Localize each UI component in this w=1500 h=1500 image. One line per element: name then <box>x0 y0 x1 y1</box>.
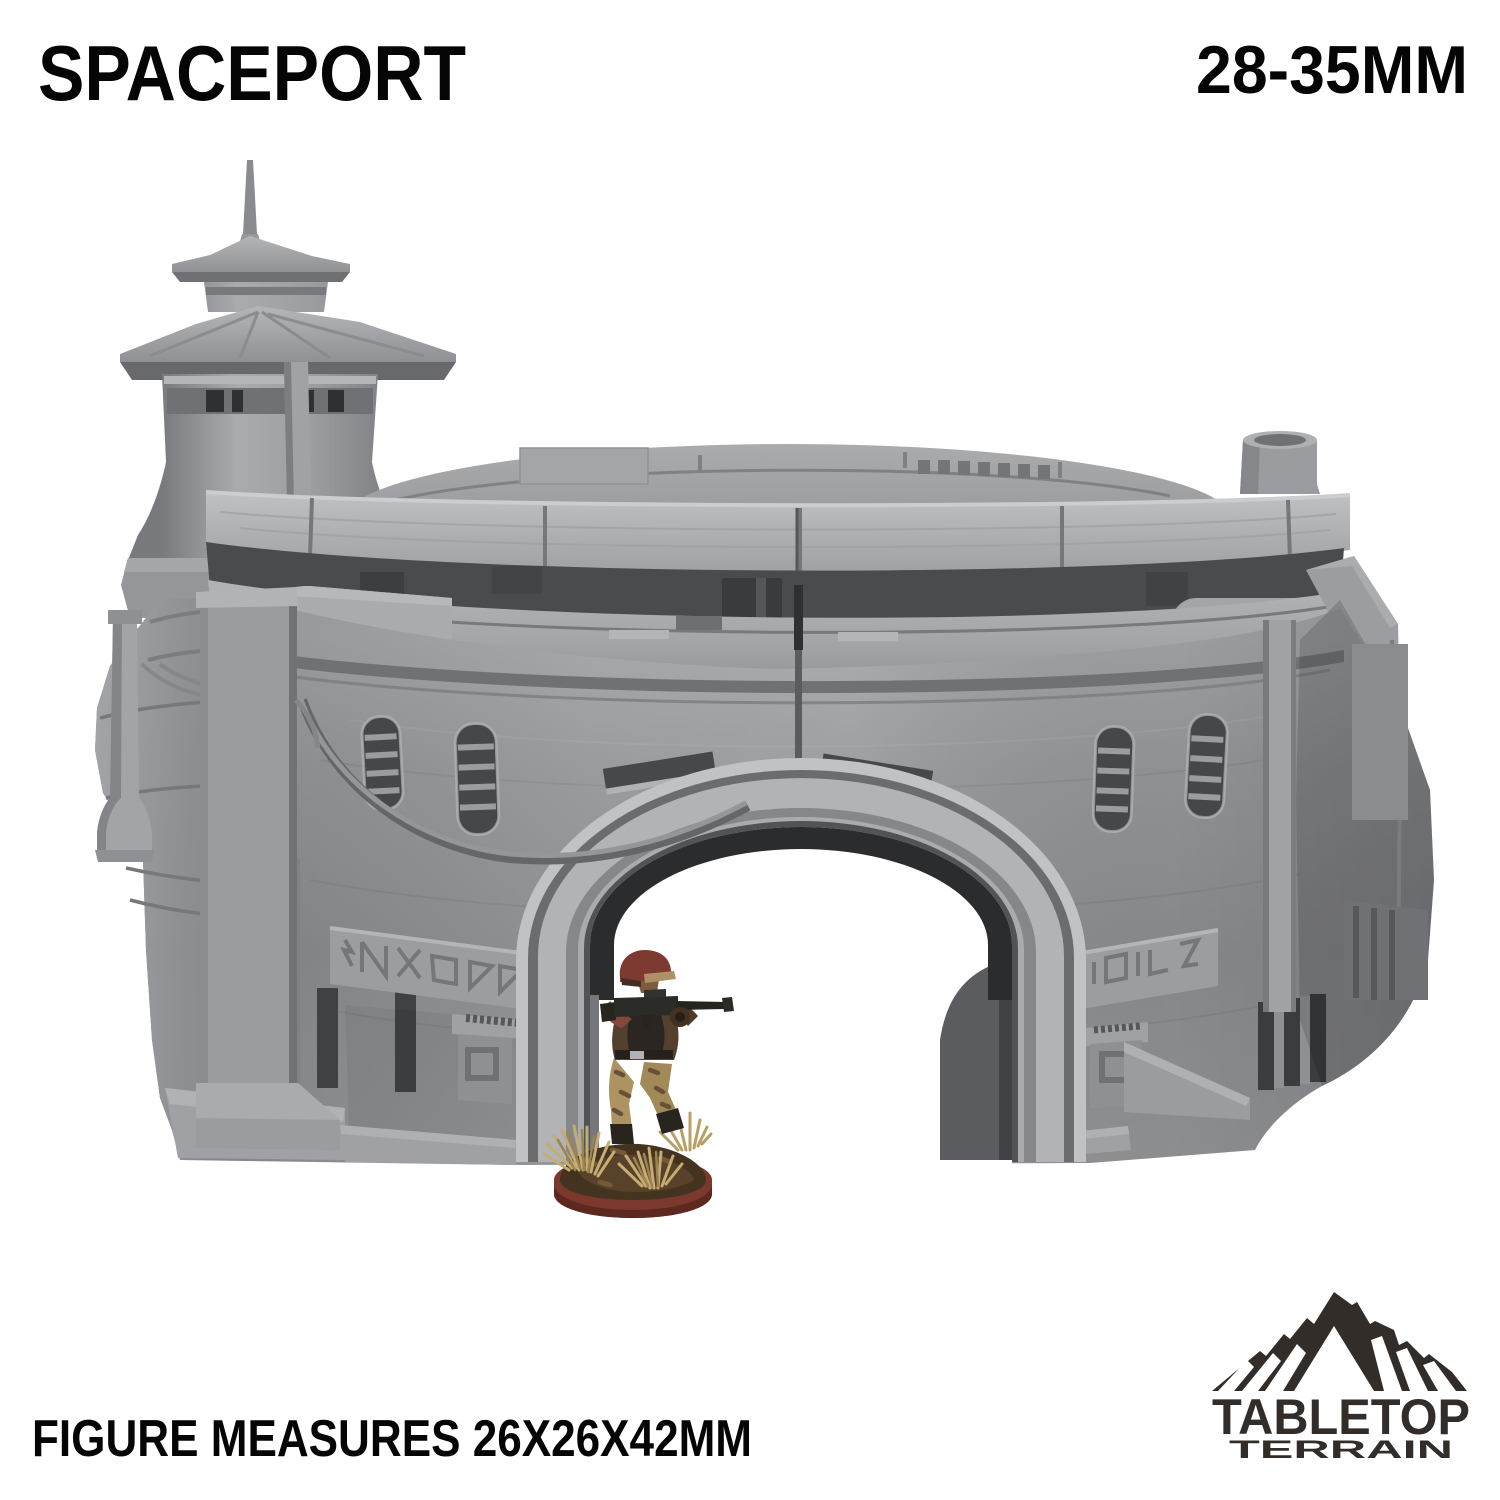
svg-text:FIGURE MEASURES 26X26X42MM: FIGURE MEASURES 26X26X42MM <box>32 1410 752 1468</box>
svg-text:TERRAIN: TERRAIN <box>1229 1436 1453 1464</box>
svg-text:28-35MM: 28-35MM <box>1196 32 1468 108</box>
svg-text:SPACEPORT: SPACEPORT <box>38 29 466 117</box>
